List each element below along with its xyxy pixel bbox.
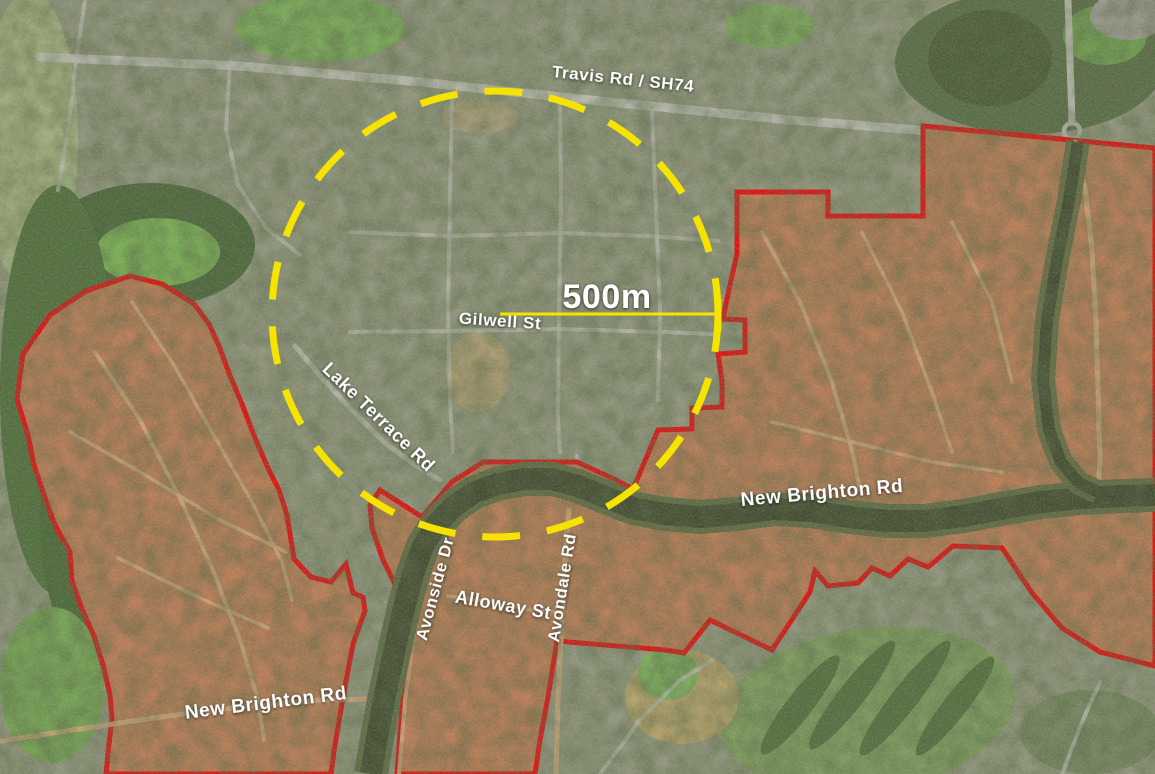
scale-label-500m: 500m	[562, 278, 651, 316]
satellite-texture-layer	[0, 0, 1155, 774]
aerial-map: Travis Rd / SH74500mGilwell StLake Terra…	[0, 0, 1155, 774]
rooftop-grain-texture	[0, 0, 1155, 774]
aerial-map-canvas: Travis Rd / SH74500mGilwell StLake Terra…	[0, 0, 1155, 774]
